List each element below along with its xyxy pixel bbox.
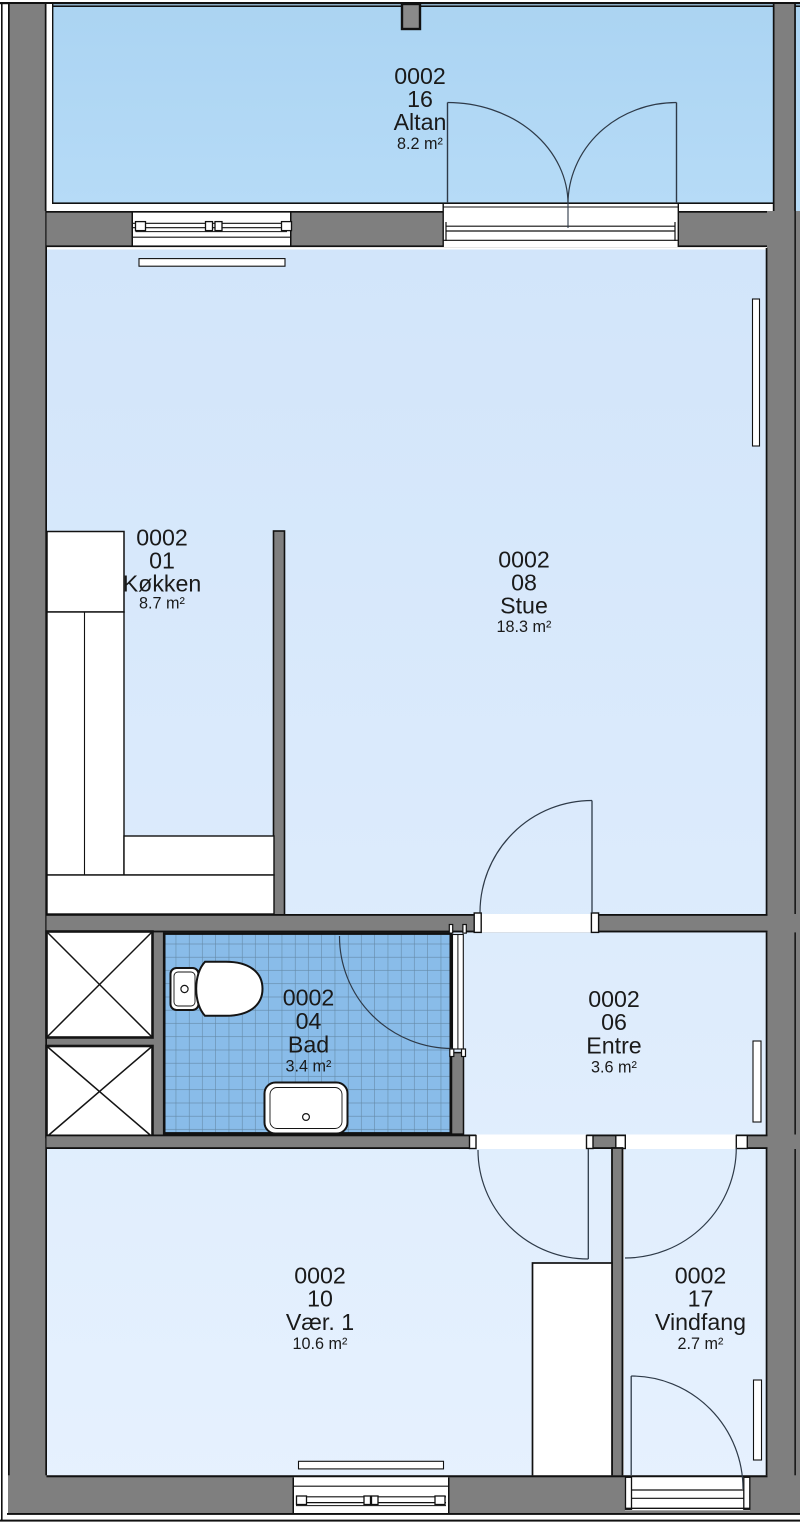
svg-text:8.7 m²: 8.7 m² xyxy=(139,595,185,613)
svg-text:Vær. 1: Vær. 1 xyxy=(286,1309,354,1335)
svg-text:10: 10 xyxy=(307,1285,333,1311)
svg-text:Stue: Stue xyxy=(500,593,548,619)
svg-text:0002: 0002 xyxy=(675,1262,727,1288)
svg-text:2.7 m²: 2.7 m² xyxy=(678,1335,724,1353)
svg-text:3.4 m²: 3.4 m² xyxy=(286,1057,332,1075)
svg-text:0002: 0002 xyxy=(394,63,446,89)
svg-text:17: 17 xyxy=(688,1285,714,1311)
svg-text:0002: 0002 xyxy=(283,985,335,1011)
svg-text:04: 04 xyxy=(296,1008,322,1034)
svg-text:3.6 m²: 3.6 m² xyxy=(591,1058,637,1076)
svg-text:10.6 m²: 10.6 m² xyxy=(293,1335,348,1353)
svg-text:Entre: Entre xyxy=(586,1032,641,1058)
svg-text:Vindfang: Vindfang xyxy=(655,1309,746,1335)
svg-text:0002: 0002 xyxy=(498,547,550,573)
svg-text:8.2 m²: 8.2 m² xyxy=(397,135,443,153)
svg-text:0002: 0002 xyxy=(588,986,640,1012)
svg-text:Altan: Altan xyxy=(394,109,447,135)
svg-text:Bad: Bad xyxy=(288,1031,329,1057)
svg-text:18.3 m²: 18.3 m² xyxy=(497,618,552,636)
svg-text:06: 06 xyxy=(601,1009,627,1035)
svg-text:0002: 0002 xyxy=(136,525,188,551)
svg-text:0002: 0002 xyxy=(294,1262,346,1288)
svg-text:Køkken: Køkken xyxy=(123,571,202,597)
